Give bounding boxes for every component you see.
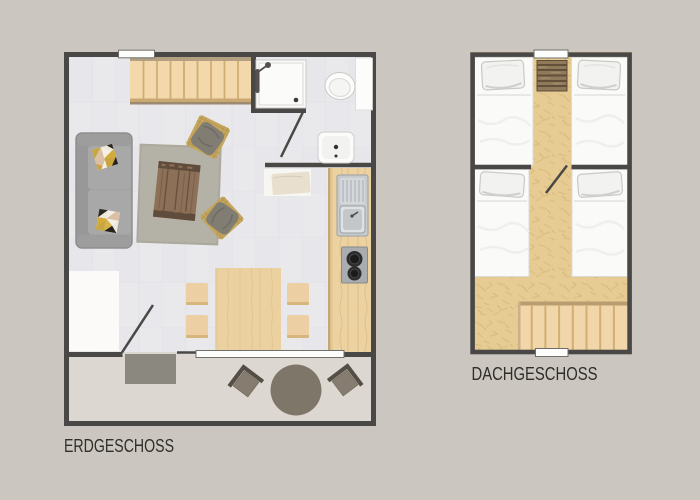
- svg-text:DACHGESCHOSS: DACHGESCHOSS: [472, 363, 598, 384]
- svg-text:ERDGESCHOSS: ERDGESCHOSS: [64, 435, 174, 456]
